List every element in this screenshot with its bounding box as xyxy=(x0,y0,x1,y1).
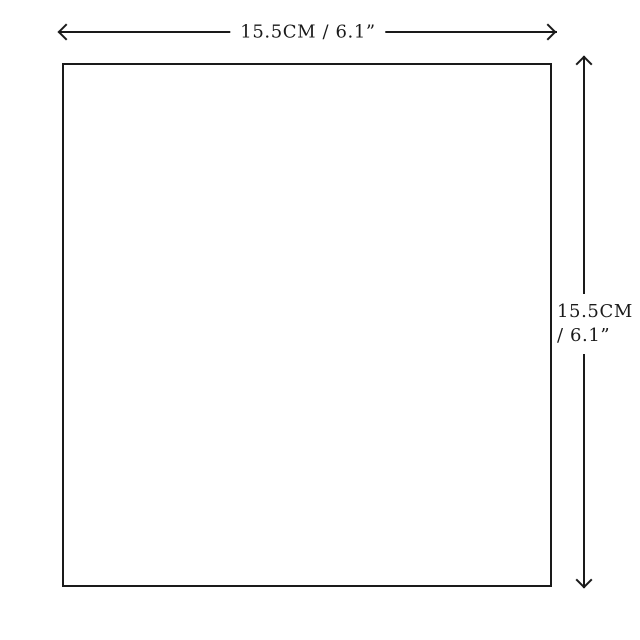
height-dimension-label: 15.5CM / 6.1” xyxy=(556,294,640,354)
arrow-left-icon xyxy=(58,24,75,41)
arrow-up-icon xyxy=(576,56,593,73)
arrow-right-icon xyxy=(540,24,557,41)
product-outline-square xyxy=(62,63,552,587)
arrow-down-icon xyxy=(576,572,593,589)
height-label-line2: / 6.1” xyxy=(557,324,640,348)
width-dimension-label: 15.5CM / 6.1” xyxy=(230,20,385,45)
height-label-line1: 15.5CM xyxy=(557,300,640,324)
dimension-diagram: 15.5CM / 6.1” 15.5CM / 6.1” xyxy=(0,0,640,640)
